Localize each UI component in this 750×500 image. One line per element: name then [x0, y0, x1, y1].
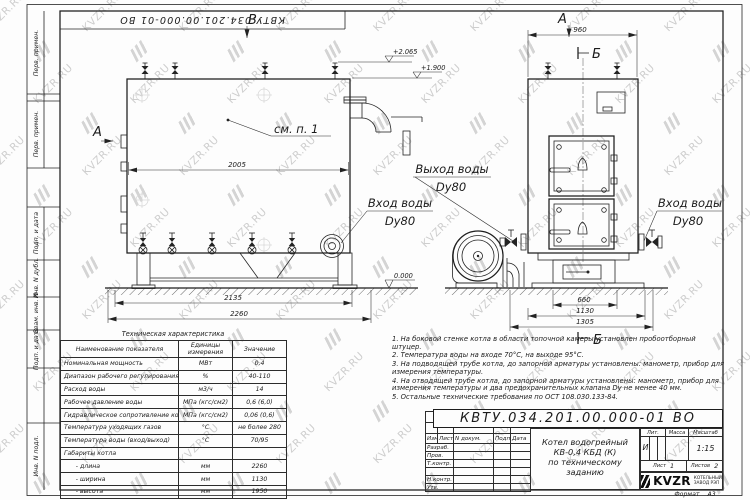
outlet-label-line1: Выход воды [415, 162, 488, 176]
water-valve-left [500, 230, 526, 250]
spec-row: Номинальная мощностьМВт0,4 [61, 358, 287, 371]
spec-value: 1130 [233, 473, 287, 486]
spec-name: Габариты котла [61, 447, 179, 460]
dim-side-top: 960 [573, 26, 587, 34]
spec-value: 14 [233, 383, 287, 396]
product-title-line: по техническому заданию [531, 457, 639, 477]
dim-front-width: 2005 [228, 161, 246, 169]
change-header: Лист [438, 434, 454, 444]
spec-row: - ширинамм1130 [61, 473, 287, 486]
note-item: 2. Температура воды на входе 70°С, на вы… [392, 352, 726, 360]
company-block: KVZR КОТЕЛЬНЫЙ ЗАВОД РЭП [640, 472, 723, 490]
title-block: Изм. Лист N докум. Подп. Дата Разраб. Пр… [425, 409, 723, 490]
company-subtitle-line: ЗАВОД РЭП [694, 481, 722, 486]
spec-name: Номинальная мощность [61, 358, 179, 371]
spec-name: Диапазон рабочего регулирования [61, 370, 179, 383]
signature-role [426, 468, 454, 476]
pipe-labels: Выход воды Dу80 Вход воды Dу80 Вход воды… [341, 162, 722, 243]
spec-row: Расход водым3/ч14 [61, 383, 287, 396]
spec-unit [179, 447, 233, 460]
spec-value: 70/95 [233, 434, 287, 447]
outlet-label-line2: Dу80 [436, 180, 466, 194]
view-labels: А В А Б Б см. п. 1 [92, 12, 602, 348]
inlet-front-label-line2: Dу80 [385, 214, 415, 228]
boiler-front-view [121, 63, 422, 289]
view-a-side-label: А [557, 12, 567, 27]
margin-label: Перв. примен. [33, 30, 40, 76]
inlet-flange [321, 235, 344, 258]
inlet-side-label-line1: Вход воды [658, 196, 722, 210]
doc-number: КВТУ.034.201.00.000-01 ВО [433, 409, 723, 428]
spec-unit: МПа (кгс/см2) [179, 409, 233, 422]
sheets-value: 2 [714, 462, 718, 470]
spec-name: - ширина [61, 473, 179, 486]
format-note: ФорматА3 [640, 491, 750, 498]
change-header: Изм. [426, 434, 438, 444]
spec-row: - длинамм2260 [61, 460, 287, 473]
drawing-sheet: KVZR.RUKVZR.RUKVZR.RUKVZR.RUKVZR.RUKVZR.… [0, 0, 750, 500]
sheets-cell: Листов 2 [686, 460, 723, 472]
spec-value: не более 280 [233, 421, 287, 434]
product-title-line: Котел водогрейный [531, 437, 639, 447]
spec-unit: °С [179, 421, 233, 434]
spec-name: Расход воды [61, 383, 179, 396]
technical-notes: 1. На боковой стенке котла в области топ… [392, 336, 726, 403]
spec-row: - высотамм1950 [61, 485, 287, 498]
elevation-mid: +1.900 [421, 64, 445, 72]
spec-row: Диапазон рабочего регулирования%40-110 [61, 370, 287, 383]
signature-role: Утв. [426, 484, 454, 492]
product-title-line: КВ-0,4 КБД (К) [531, 447, 639, 457]
spec-unit: мм [179, 460, 233, 473]
dim-side-mid: 1130 [576, 307, 594, 315]
spec-value: 0,06 (0,6) [233, 409, 287, 422]
signature-role: Разраб. [426, 444, 454, 452]
dim-front-base: 2135 [224, 294, 242, 302]
flue-duct [344, 97, 422, 155]
spec-name: Гидравлическое сопротивление котла [61, 409, 179, 422]
spec-unit: МВт [179, 358, 233, 371]
spec-row: Температура уходящих газов°Сне более 280 [61, 421, 287, 434]
change-header: Дата [511, 434, 531, 444]
signature-role: Пров. [426, 452, 454, 460]
dim-side-base: 660 [577, 296, 591, 304]
inlet-side-label-line2: Dу80 [673, 214, 703, 228]
spec-value [233, 447, 287, 460]
spec-header-unit: Единицы измерения [179, 341, 233, 358]
dimensions: 2005 2135 2260 960 660 1130 1305 [108, 26, 653, 331]
margin-label: Перв. примен. [33, 111, 40, 157]
elevation-zero: 0.000 [394, 272, 413, 280]
spec-unit: м3/ч [179, 383, 233, 396]
margin-label: Подп. и дата [33, 212, 40, 254]
spec-value: 2260 [233, 460, 287, 473]
doc-number-rotated: КВТУ.034.201.00.000-01 ВО [119, 14, 285, 25]
kvzr-logo-icon [641, 475, 650, 488]
note-item: 3. На подводящей трубе котла, до запорно… [392, 361, 726, 376]
spec-unit: мм [179, 485, 233, 498]
elevation-top: +2.065 [393, 48, 417, 56]
inlet-front-label-line1: Вход воды [368, 196, 432, 210]
spec-row: Габариты котла [61, 447, 287, 460]
mass-value [665, 436, 689, 461]
format-label: Формат [674, 491, 699, 498]
spec-name: Рабочее давление воды [61, 396, 179, 409]
spec-unit: °С [179, 434, 233, 447]
view-b-label: В [248, 13, 257, 28]
spec-value: 0,4 [233, 358, 287, 371]
water-valve-right [639, 230, 662, 250]
note-item: 5. Остальные технические требования по О… [392, 394, 726, 402]
spec-value: 40-110 [233, 370, 287, 383]
spec-value: 0,6 (6,0) [233, 396, 287, 409]
dim-side-total: 1305 [576, 318, 594, 326]
margin-label: Подп. и дата [33, 328, 40, 370]
product-title: Котел водогрейный КВ-0,4 КБД (К) по техн… [530, 428, 640, 490]
signature-role: Н.контр. [426, 476, 454, 484]
stamp-right-block: Лит. Масса Масштаб И 1:15 Лист 1 Листов … [640, 428, 723, 490]
sheet-value: 1 [670, 462, 674, 470]
spec-unit: % [179, 370, 233, 383]
spec-row: Температура воды (вход/выход)°С70/95 [61, 434, 287, 447]
spec-header-value: Значение [233, 341, 287, 358]
ground-line [105, 288, 668, 295]
signature-role: Т.контр. [426, 460, 454, 468]
see-item-note: см. п. 1 [274, 122, 318, 136]
margin-label: Инв. N подл. [33, 436, 40, 477]
kvzr-logo-text: KVZR [653, 474, 691, 488]
change-header-row: Изм. Лист N докум. Подп. Дата [426, 434, 531, 444]
spec-row: Рабочее давление водыМПа (кгс/см2)0,6 (6… [61, 396, 287, 409]
spec-header-name: Наименование показателя [61, 341, 179, 358]
spec-name: - высота [61, 485, 179, 498]
blower-fan [453, 231, 525, 288]
boiler-side-view [500, 58, 662, 288]
spec-name: - длина [61, 460, 179, 473]
dim-front-total: 2260 [230, 310, 248, 318]
spec-table-title: Техническая характеристика [60, 330, 286, 340]
company-subtitle: КОТЕЛЬНЫЙ ЗАВОД РЭП [694, 476, 722, 486]
scale-value: 1:15 [688, 436, 723, 461]
spec-value: 1950 [233, 485, 287, 498]
spec-name: Температура уходящих газов [61, 421, 179, 434]
sheet-cell: Лист 1 [640, 460, 687, 472]
change-header: N докум. [454, 434, 494, 444]
spec-unit: мм [179, 473, 233, 486]
sheet-label: Лист [653, 463, 666, 469]
margin-label: Инв. N дубл. [32, 258, 40, 299]
lit-value: И [641, 437, 650, 459]
note-item: 4. На отводящей трубе котла, до запорной… [392, 378, 726, 393]
spec-table: Техническая характеристика Наименование … [60, 330, 286, 499]
sheets-label: Листов [691, 463, 710, 469]
note-item: 1. На боковой стенке котла в области топ… [392, 336, 726, 351]
change-header: Подп. [494, 434, 511, 444]
spec-header-row: Наименование показателя Единицы измерени… [61, 341, 287, 358]
spec-name: Температура воды (вход/выход) [61, 434, 179, 447]
margin-label: Взам. инв. N [33, 293, 40, 334]
spec-unit: МПа (кгс/см2) [179, 396, 233, 409]
view-a-front-label: А [92, 125, 102, 140]
format-value: А3 [707, 491, 715, 498]
section-b-top-label: Б [592, 47, 601, 62]
spec-row: Гидравлическое сопротивление котлаМПа (к… [61, 409, 287, 422]
